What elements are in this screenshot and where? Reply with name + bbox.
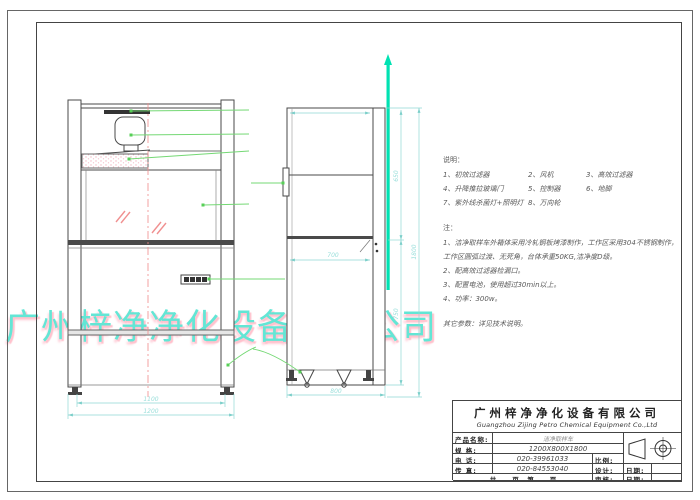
remark-line: 工作区圆弧过渡、无死角，台体承重50KG,洁净度D级。 <box>443 252 617 262</box>
pages-label: 共 页 第 页 <box>453 474 593 481</box>
projection-symbol-cell <box>624 433 682 464</box>
scale-label: 比例: <box>593 454 624 464</box>
remark-line: 2、配高效过滤器检漏口。 <box>443 266 524 276</box>
fax-label: 传 真: <box>453 464 493 474</box>
audit-label: 审核: <box>593 474 624 481</box>
dim-side-lower-height: 750 <box>393 308 400 320</box>
date-label-2: 日期: <box>624 474 652 481</box>
dim-side-depth: 800 <box>330 388 342 395</box>
dim-front-feet-span: 1100 <box>143 396 158 403</box>
spec-label: 规 格: <box>453 444 493 454</box>
remark-line: 1、洁净取样车外箱体采用冷轧钢板烤漆制作，工作区采用304不锈钢制作， <box>443 238 678 248</box>
legend-item: 8、万向轮 <box>528 198 560 208</box>
glass-hatch-marks <box>116 211 166 234</box>
legend-item: 6、地脚 <box>586 184 611 194</box>
fax-value: 020-84553040 <box>493 464 593 474</box>
legend-item: 1、初效过滤器 <box>443 170 489 180</box>
spec-value: 1200X800X1800 <box>493 444 624 454</box>
dim-side-total-height: 1800 <box>411 244 418 259</box>
tel-label: 电 话: <box>453 454 493 464</box>
legend-item: 3、高效过滤器 <box>586 170 632 180</box>
legend-item: 2、风机 <box>528 170 553 180</box>
drawing-sheet: 广州梓净净化设备有限公司 <box>0 0 700 500</box>
other-params-line: 其它参数：详见技术说明。 <box>443 319 527 329</box>
legend-item: 5、控制器 <box>528 184 560 194</box>
design-label: 设计: <box>593 464 624 474</box>
remark-line: 3、配置电池，使用超过30min以上。 <box>443 280 561 290</box>
title-block: 广州梓净净化设备有限公司 Guangzhou Zijing Petro Chem… <box>452 400 681 480</box>
remarks-title: 注： <box>443 223 457 233</box>
hepa-filter <box>82 154 148 168</box>
projection-symbol-icon <box>624 433 682 464</box>
dim-side-work-depth: 700 <box>327 252 339 259</box>
legend-title: 说明： <box>443 155 464 165</box>
company-name-en: Guangzhou Zijing Petro Chemical Equipmen… <box>453 421 681 429</box>
legend-item: 7、紫外线杀菌灯+照明灯 <box>443 198 523 208</box>
legend-item: 4、升降推拉玻璃门 <box>443 184 503 194</box>
lower-shelf <box>68 330 234 335</box>
fan-blower <box>95 117 150 154</box>
front-view <box>68 100 234 395</box>
date-value-2 <box>652 474 682 481</box>
control-panel <box>181 275 210 284</box>
work-surface <box>68 240 234 245</box>
tel-value: 020-39961033 <box>493 454 593 464</box>
product-name-label: 产品名称: <box>453 433 493 444</box>
dim-side-upper-height: 650 <box>393 170 400 182</box>
remark-line: 4、功率：300w。 <box>443 294 502 304</box>
side-view <box>283 108 385 387</box>
front-feet <box>68 387 234 395</box>
dim-front-width: 1200 <box>143 408 158 415</box>
company-name-cn: 广州梓净净化设备有限公司 <box>453 401 681 421</box>
product-name-value: 洁净取样车 <box>493 433 624 444</box>
date-label-1: 日期: <box>624 464 652 474</box>
date-value-1 <box>652 464 682 474</box>
